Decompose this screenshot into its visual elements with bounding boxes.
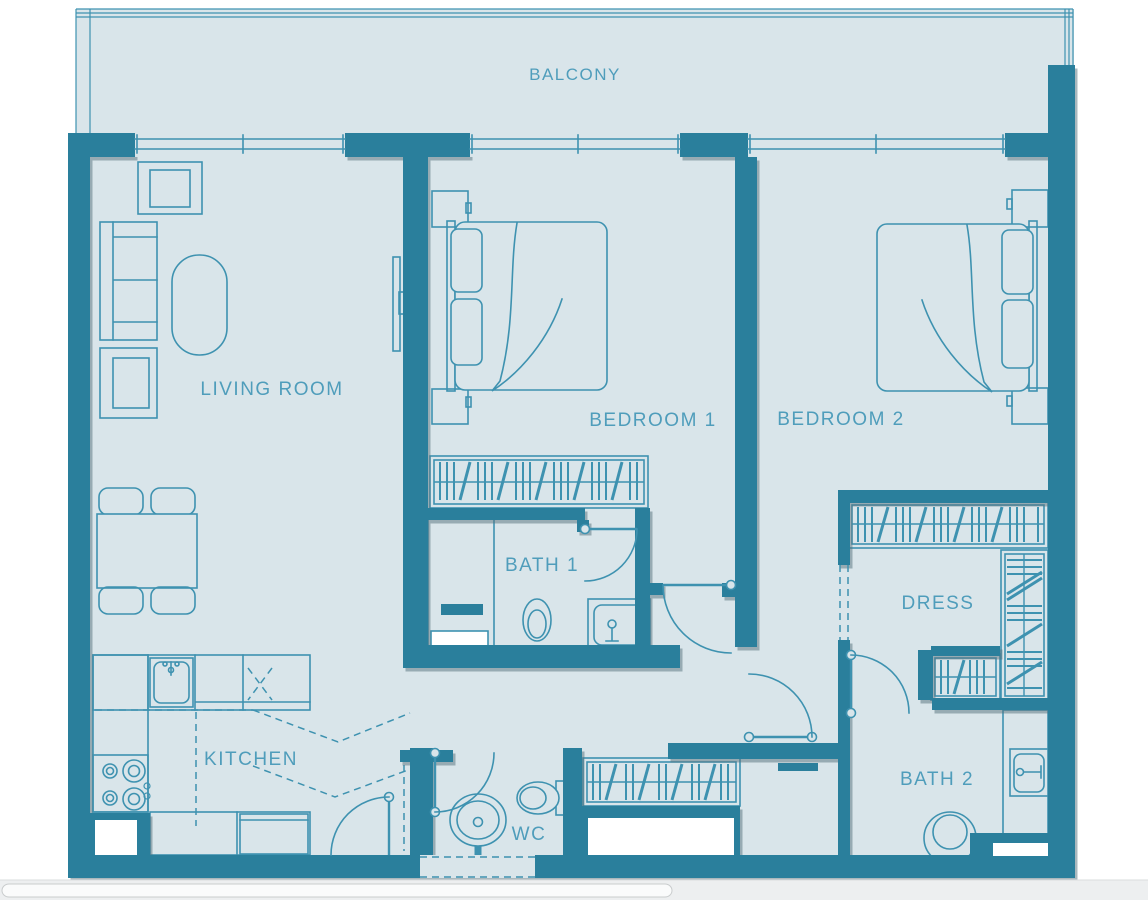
wardrobe-dress-top [848, 501, 1048, 548]
pillow [1002, 230, 1033, 294]
wall-bottom [68, 855, 1075, 878]
windows [135, 133, 1005, 157]
wardrobe-bedroom-1 [430, 456, 648, 508]
label-bedroom-2: BEDROOM 2 [777, 409, 905, 430]
opening-dashed-bottom [420, 855, 535, 878]
wardrobe-dress-small [931, 654, 1000, 700]
floor-plan-svg: BALCONY LIVING ROOM BEDROOM 1 BEDROOM 2 … [0, 0, 1148, 900]
wall-bath1-bottom [403, 645, 680, 668]
wall-door-jamb [650, 583, 663, 595]
opening-bath2-window [993, 843, 1048, 856]
label-dress: DRESS [902, 593, 975, 614]
wall-hall-dress [838, 500, 850, 565]
pillow [1002, 300, 1033, 368]
scrollbar-thumb[interactable] [2, 884, 672, 897]
opening-kitchen-window [95, 820, 137, 855]
entry-threshold [778, 763, 818, 771]
pillow [451, 229, 482, 292]
bedroom-2-furniture [877, 190, 1048, 424]
wall-wc-left [410, 748, 433, 855]
label-balcony: BALCONY [529, 65, 621, 84]
wall-top [680, 133, 748, 157]
wall-dress-jamb [918, 650, 933, 700]
wall-bedroom1-bedroom2 [735, 157, 757, 647]
double-bed [447, 221, 607, 391]
dining-table [97, 514, 197, 588]
wall-living-bedroom1 [403, 157, 428, 655]
opening-entry [588, 818, 734, 855]
wall-dress-top [838, 490, 1048, 503]
wall-top [345, 133, 470, 157]
label-kitchen: KITCHEN [204, 749, 298, 770]
label-living-room: LIVING ROOM [200, 379, 343, 400]
label-bath-2: BATH 2 [900, 769, 974, 790]
label-bath-1: BATH 1 [505, 555, 579, 576]
wall-bath2-top [932, 698, 1050, 710]
shower-shelf [441, 604, 483, 615]
floor-plan-page: BALCONY LIVING ROOM BEDROOM 1 BEDROOM 2 … [0, 0, 1148, 900]
bedroom-1-furniture [432, 191, 607, 424]
wall-bath2-left [838, 640, 850, 855]
wall-hall-south [668, 743, 838, 759]
wall-closet-top [931, 646, 1000, 656]
window-bedroom-2 [748, 133, 1005, 157]
wardrobe-dress-right [1001, 550, 1048, 700]
wall-right [1048, 65, 1075, 878]
wall-wc-right [563, 748, 582, 855]
wall-wc-top [400, 750, 453, 762]
double-bed [877, 221, 1037, 392]
shoe-closet [583, 758, 740, 806]
bath-sink [1010, 749, 1048, 796]
label-wc: WC [512, 824, 547, 845]
horizontal-scrollbar[interactable] [0, 880, 1148, 900]
window-living-room [135, 133, 345, 157]
wall-bath1-top [403, 508, 585, 520]
toilet [517, 781, 568, 815]
pillow [451, 299, 482, 365]
toilet [523, 599, 551, 641]
wall-left [68, 133, 90, 878]
window-bedroom-1 [470, 133, 680, 157]
label-bedroom-1: BEDROOM 1 [589, 410, 717, 431]
